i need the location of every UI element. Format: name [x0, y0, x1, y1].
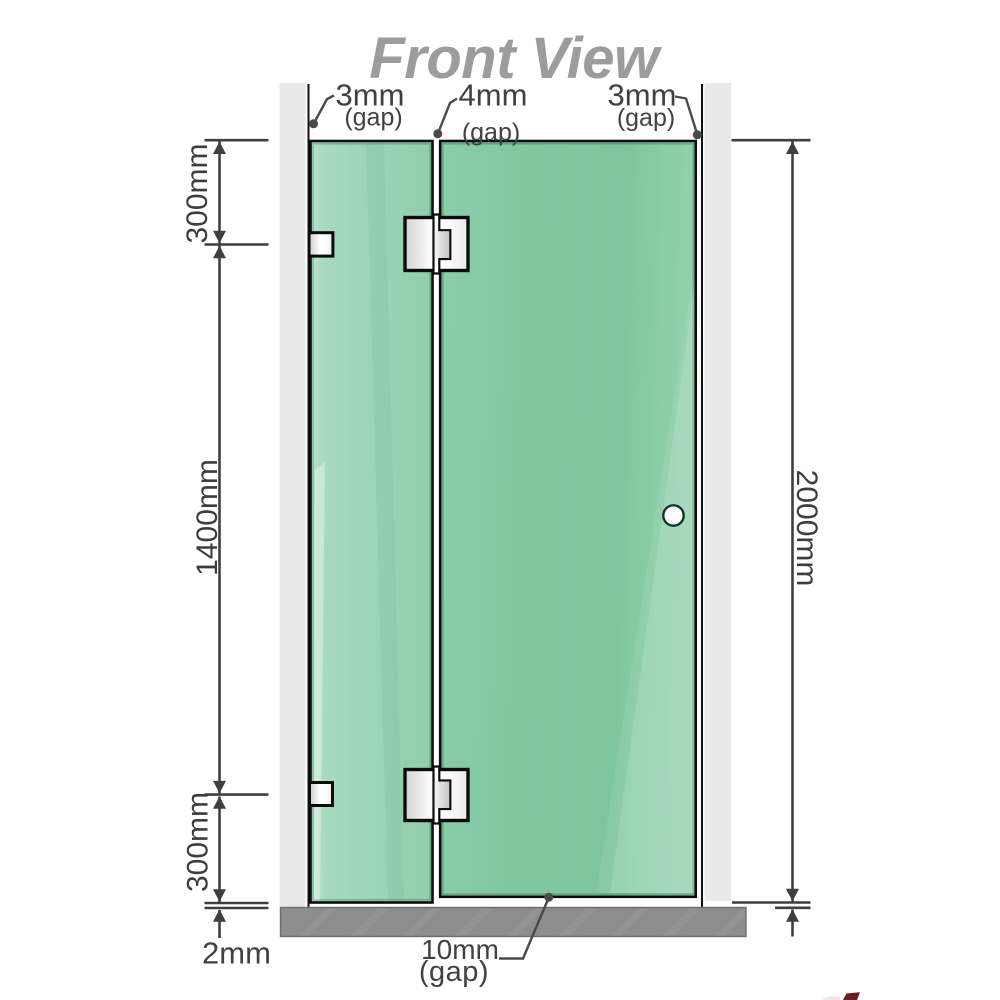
svg-text:1400mm: 1400mm [191, 459, 224, 576]
svg-text:300mm: 300mm [181, 143, 214, 243]
svg-text:4mm: 4mm [459, 78, 528, 113]
svg-text:2000mm: 2000mm [790, 470, 823, 587]
svg-text:(gap): (gap) [344, 104, 402, 132]
svg-text:2mm: 2mm [202, 936, 271, 971]
svg-text:300mm: 300mm [182, 792, 215, 892]
svg-text:(gap): (gap) [419, 956, 489, 988]
svg-text:(gap): (gap) [617, 104, 675, 132]
svg-text:(gap): (gap) [462, 119, 520, 147]
